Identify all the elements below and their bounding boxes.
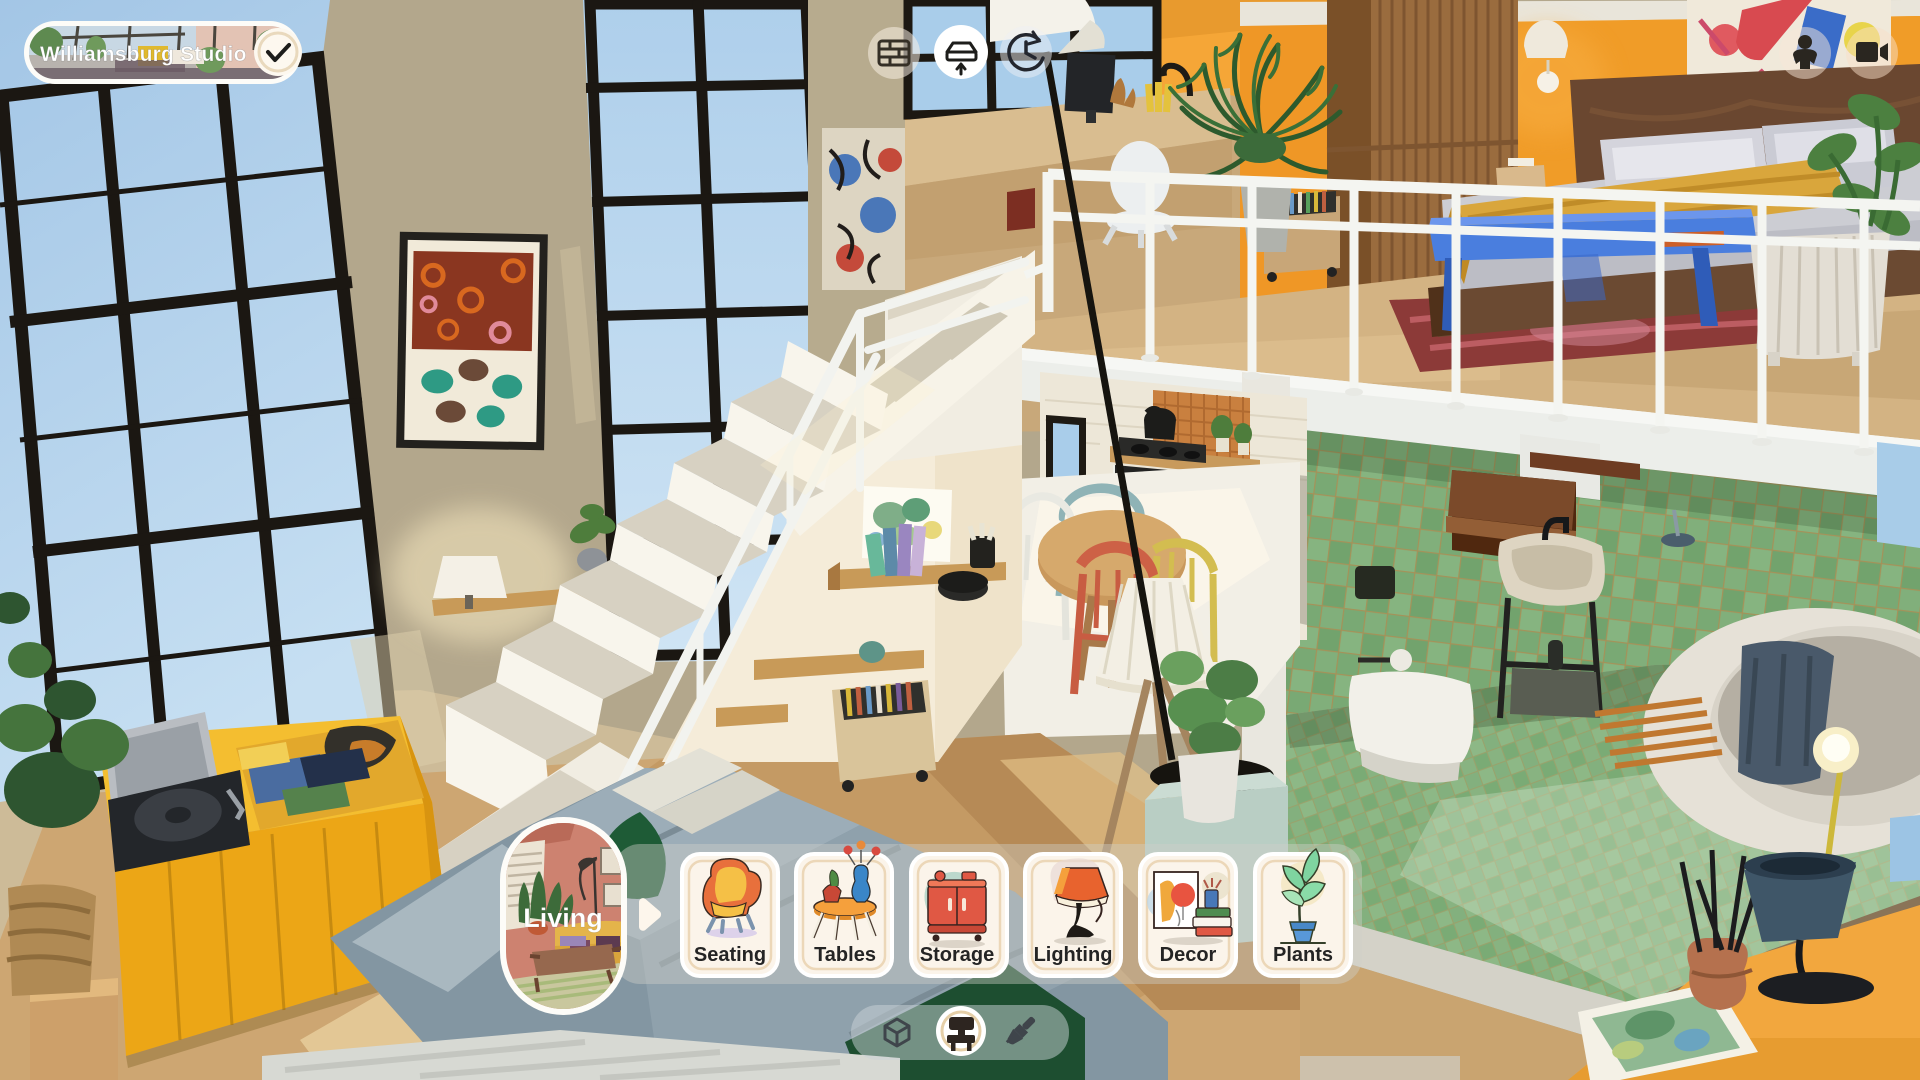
svg-text:Williamsburg Studio: Williamsburg Studio: [40, 43, 247, 66]
svg-text:Lighting: Lighting: [1034, 944, 1113, 966]
svg-text:Plants: Plants: [1273, 944, 1333, 966]
svg-text:Seating: Seating: [694, 944, 766, 966]
svg-text:Living: Living: [523, 903, 603, 933]
svg-text:Tables: Tables: [814, 944, 876, 966]
svg-text:Storage: Storage: [920, 944, 994, 966]
svg-text:Decor: Decor: [1160, 944, 1217, 966]
